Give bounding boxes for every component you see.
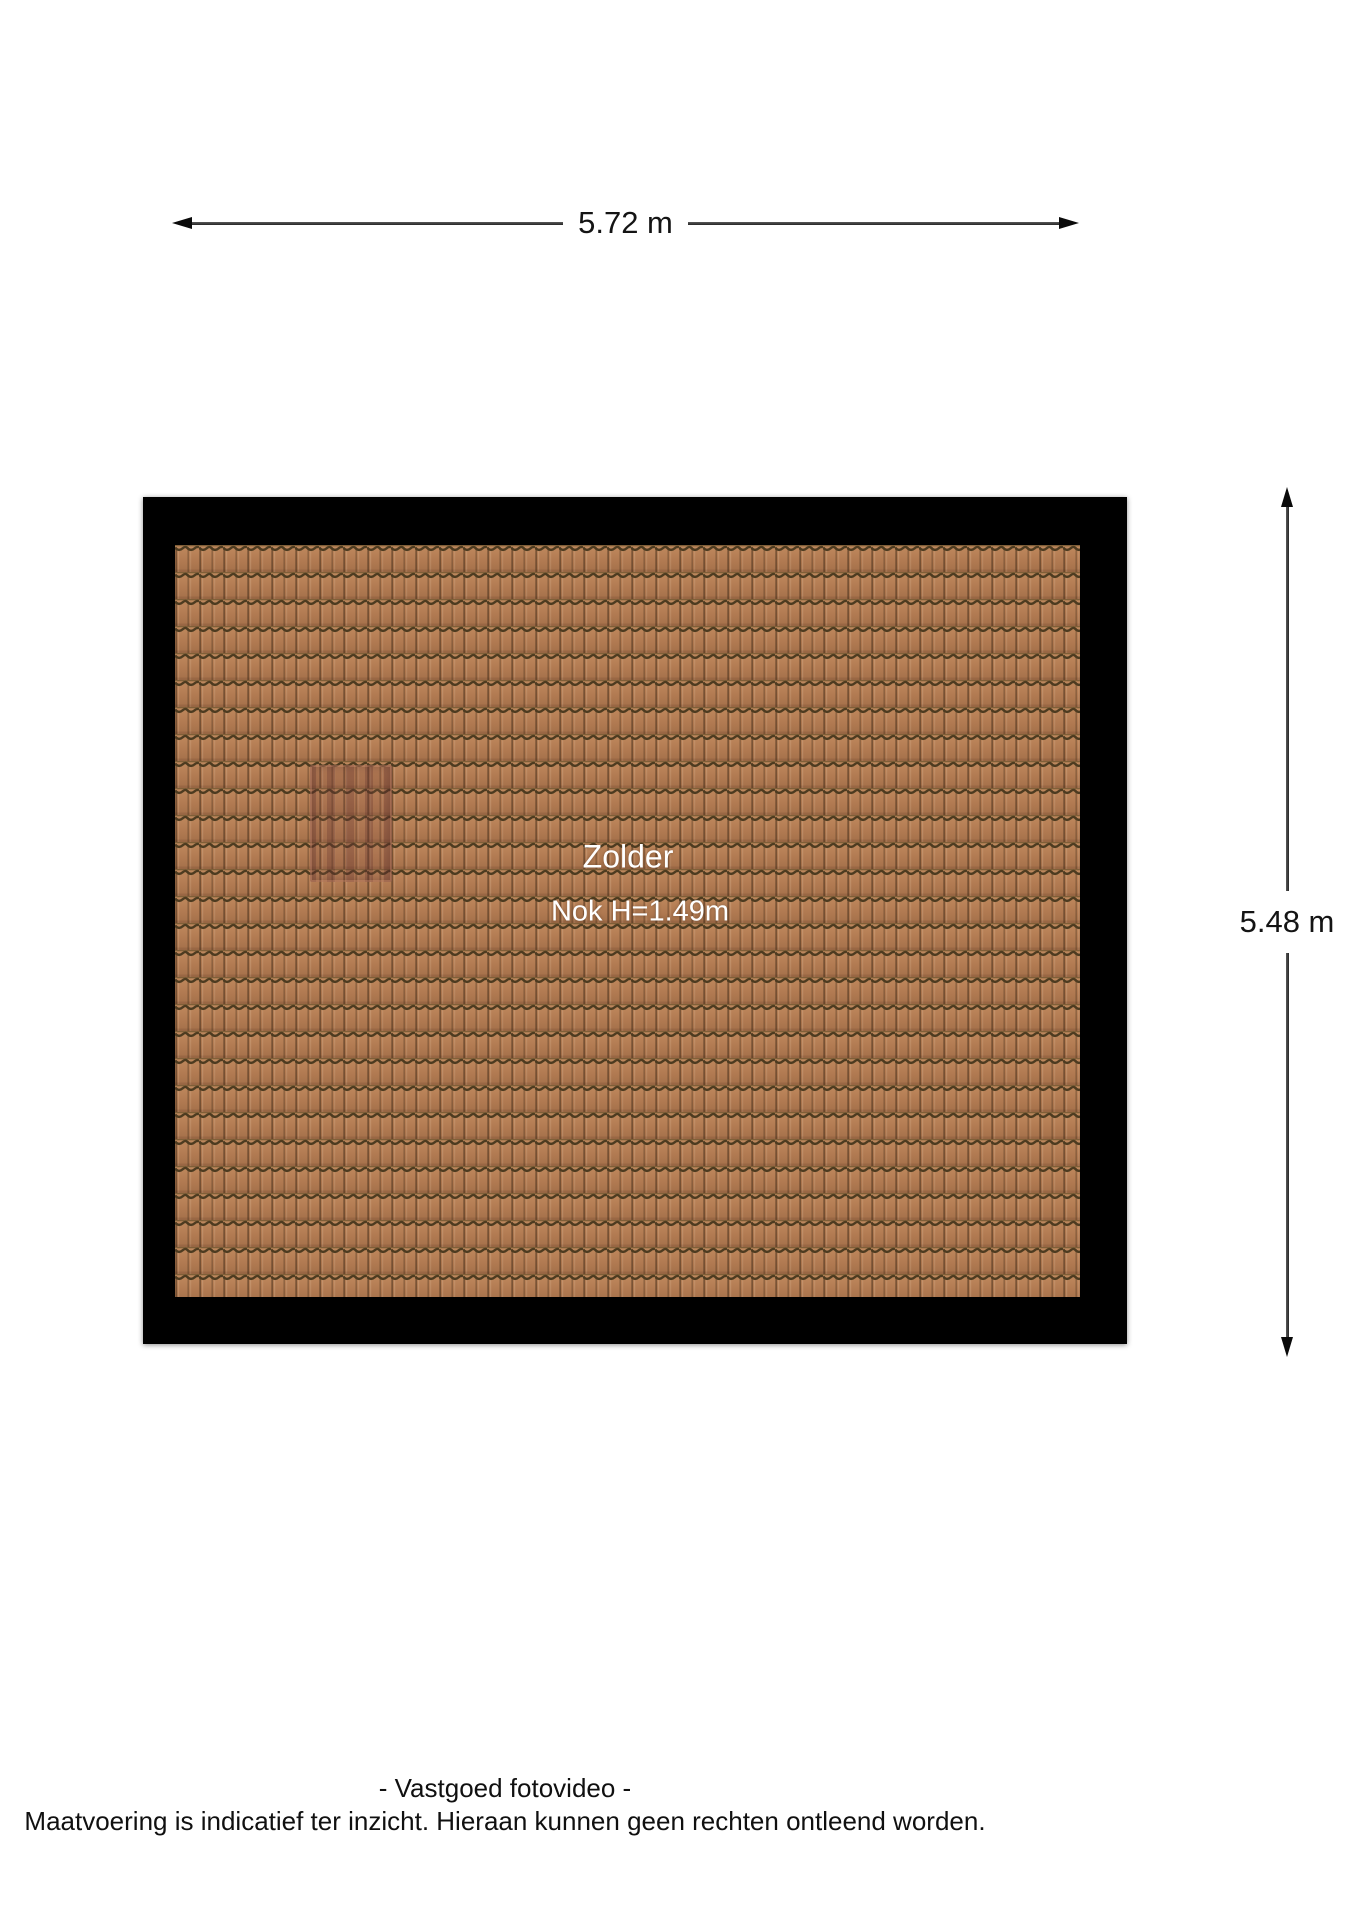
footer-disclaimer: Maatvoering is indicatief ter inzicht. H… [0, 1805, 1010, 1838]
floorplan-page: 5.72 m [0, 0, 1358, 1920]
arrow-right-icon [1059, 217, 1079, 229]
dimension-line-top [1286, 507, 1289, 891]
footer-brand: - Vastgoed fotovideo - [0, 1772, 1010, 1805]
dimension-line-right [688, 222, 1059, 225]
ridge-height-label: Nok H=1.49m [551, 896, 729, 929]
floorplan: Zolder Nok H=1.49m [143, 497, 1127, 1344]
arrow-up-icon [1281, 487, 1293, 507]
arrow-down-icon [1281, 1337, 1293, 1357]
room-name: Zolder [583, 839, 674, 876]
dimension-width: 5.72 m [172, 209, 1079, 237]
dimension-width-label: 5.72 m [563, 209, 688, 237]
arrow-left-icon [172, 217, 192, 229]
dimension-height: 5.48 m [1273, 487, 1301, 1357]
dimension-height-label: 5.48 m [1240, 891, 1335, 953]
footer: - Vastgoed fotovideo - Maatvoering is in… [0, 1772, 1010, 1838]
roof-window [310, 765, 392, 882]
dimension-line-left [192, 222, 563, 225]
dimension-line-bottom [1286, 953, 1289, 1337]
